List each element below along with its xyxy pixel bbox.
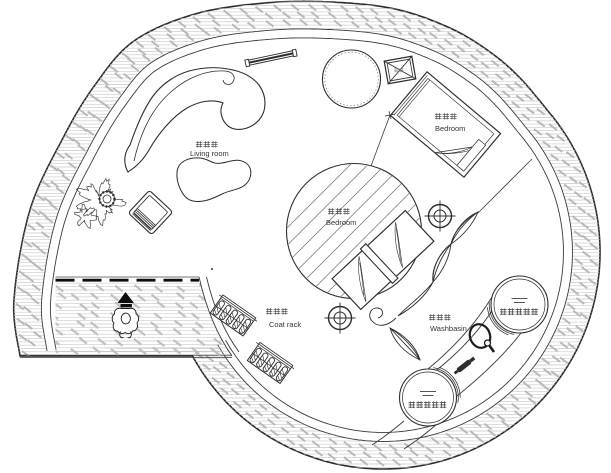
svg-text:Coat rack: Coat rack (269, 320, 301, 329)
svg-text:Bedroom: Bedroom (435, 124, 465, 133)
svg-text:Living room: Living room (190, 149, 229, 158)
svg-text:Bedroom: Bedroom (326, 218, 356, 227)
svg-text:Washbasin: Washbasin (430, 324, 467, 333)
